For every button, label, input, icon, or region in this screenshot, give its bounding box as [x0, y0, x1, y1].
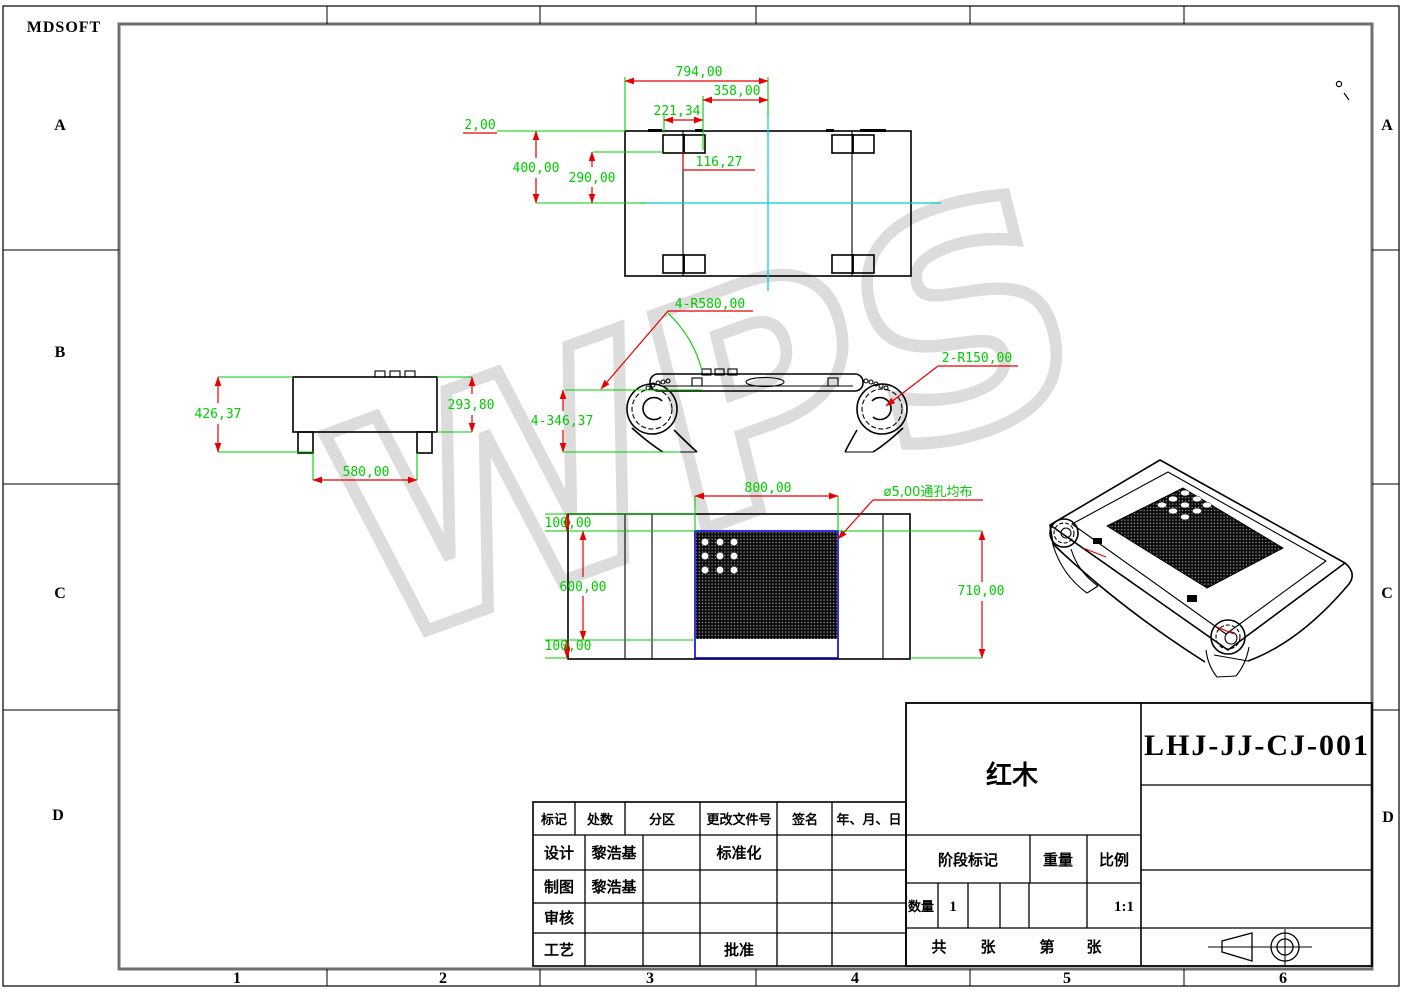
- approve-label: 批准: [724, 941, 754, 959]
- dim-346: 4-346,37: [531, 414, 594, 429]
- drawing-number: LHJ-JJ-CJ-001: [1144, 729, 1370, 762]
- cane-mesh-panel: [696, 532, 837, 639]
- iso-foot-front: [1206, 620, 1249, 677]
- dim-100-bottom: 100,00: [545, 639, 592, 654]
- standardization-label: 标准化: [715, 844, 761, 862]
- sheets-unit-1: 张: [980, 938, 996, 956]
- sheets-unit-2: 张: [1086, 938, 1102, 956]
- process-label: 工艺: [544, 941, 574, 959]
- rev-header-docno: 更改文件号: [706, 812, 771, 828]
- col-number-2: 2: [439, 970, 447, 987]
- dim-710: 710,00: [958, 584, 1005, 599]
- zone-letter-d-left: D: [52, 807, 64, 824]
- sheets-total-label: 共: [931, 938, 946, 956]
- dim-600: 600,00: [560, 580, 607, 595]
- col-number-3: 3: [646, 970, 654, 987]
- dim-2: 2,00: [464, 118, 495, 133]
- cad-drawing-sheet: WPS MDSOFT A B C D A C D 1 2 3 4 5: [0, 0, 1403, 992]
- dim-293: 293,80: [448, 398, 495, 413]
- design-name: 黎浩基: [591, 844, 637, 862]
- dim-800: 800,00: [745, 481, 792, 496]
- col-number-4: 4: [851, 970, 859, 987]
- design-label: 设计: [544, 844, 574, 862]
- zone-letter-a-right: A: [1381, 117, 1393, 134]
- zone-letter-b-left: B: [55, 344, 66, 361]
- scale-value: 1:1: [1114, 899, 1134, 915]
- dim-290: 290,00: [569, 171, 616, 186]
- zone-letter-c-left: C: [54, 585, 66, 602]
- col-number-5: 5: [1063, 970, 1071, 987]
- dim-221: 221,34: [654, 104, 701, 119]
- sheet-number-label: 第: [1039, 938, 1054, 956]
- zone-letter-d-right: D: [1382, 809, 1394, 826]
- check-label: 审核: [544, 909, 574, 927]
- isometric-view: [1050, 460, 1352, 677]
- weight-label: 重量: [1043, 851, 1073, 869]
- draft-name: 黎浩基: [591, 878, 637, 896]
- dim-400: 400,00: [513, 161, 560, 176]
- zone-letter-c-right: C: [1381, 585, 1393, 602]
- drawing-canvas[interactable]: WPS MDSOFT A B C D A C D 1 2 3 4 5: [0, 0, 1403, 992]
- scale-label: 比例: [1099, 851, 1129, 869]
- mesh-holes: [701, 538, 737, 573]
- draft-label: 制图: [544, 878, 574, 896]
- dim-r150: 2-R150,00: [942, 351, 1012, 366]
- col-number-1: 1: [233, 970, 241, 987]
- part-name: 红木: [986, 760, 1038, 791]
- dim-r580: 4-R580,00: [675, 297, 745, 312]
- dim-426: 426,37: [195, 407, 242, 422]
- iso-mesh-panel: [1107, 488, 1283, 588]
- rev-header-mark: 标记: [540, 812, 567, 828]
- dim-hole-note: ø5,00通孔均布: [884, 485, 973, 500]
- quantity-label: 数量: [908, 899, 934, 915]
- dim-116: 116,27: [696, 155, 743, 170]
- dim-358: 358,00: [714, 84, 761, 99]
- dim-794: 794,00: [676, 65, 723, 80]
- zone-letter-a-left: A: [54, 117, 66, 134]
- rev-header-date: 年、月、日: [836, 812, 901, 828]
- title-block: 标记 处数 分区 更改文件号 签名 年、月、日 设计 黎浩基 标准化 制图 黎浩…: [533, 703, 1372, 966]
- rev-header-sign: 签名: [791, 812, 818, 828]
- quantity-value: 1: [949, 899, 957, 915]
- stage-mark-label: 阶段标记: [938, 851, 998, 869]
- rev-header-zone: 分区: [649, 812, 675, 828]
- dim-100-top: 100,00: [545, 516, 592, 531]
- col-number-6: 6: [1279, 970, 1287, 987]
- mdsoft-logo: MDSOFT: [27, 19, 101, 36]
- stray-mark: [1336, 81, 1349, 100]
- dim-580: 580,00: [343, 465, 390, 480]
- projection-symbol: [1208, 929, 1312, 965]
- rev-header-count: 处数: [586, 812, 614, 828]
